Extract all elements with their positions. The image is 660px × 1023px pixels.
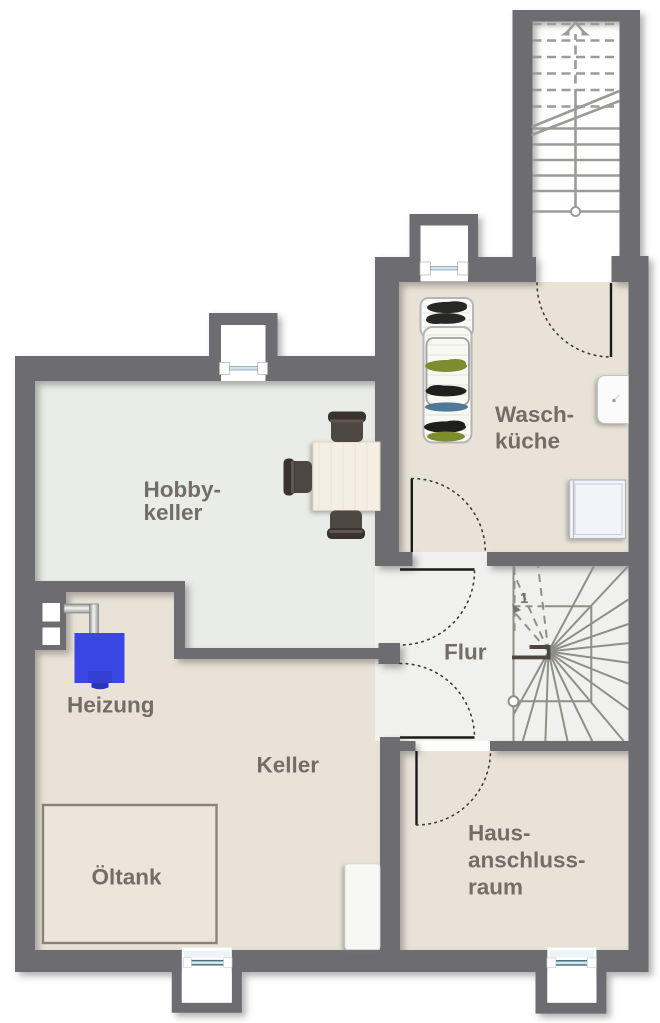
svg-text:Haus-: Haus- [468,821,531,846]
svg-text:anschluss-: anschluss- [468,848,586,873]
svg-text:1: 1 [520,590,528,607]
svg-text:Wasch-: Wasch- [495,402,574,427]
svg-text:Heizung: Heizung [67,693,155,718]
svg-text:Flur: Flur [444,640,487,665]
svg-text:raum: raum [468,875,523,900]
svg-text:küche: küche [495,429,560,454]
svg-text:Hobby-: Hobby- [144,477,222,502]
svg-text:Öltank: Öltank [92,865,163,890]
svg-text:keller: keller [144,500,203,525]
svg-text:Keller: Keller [257,753,320,778]
